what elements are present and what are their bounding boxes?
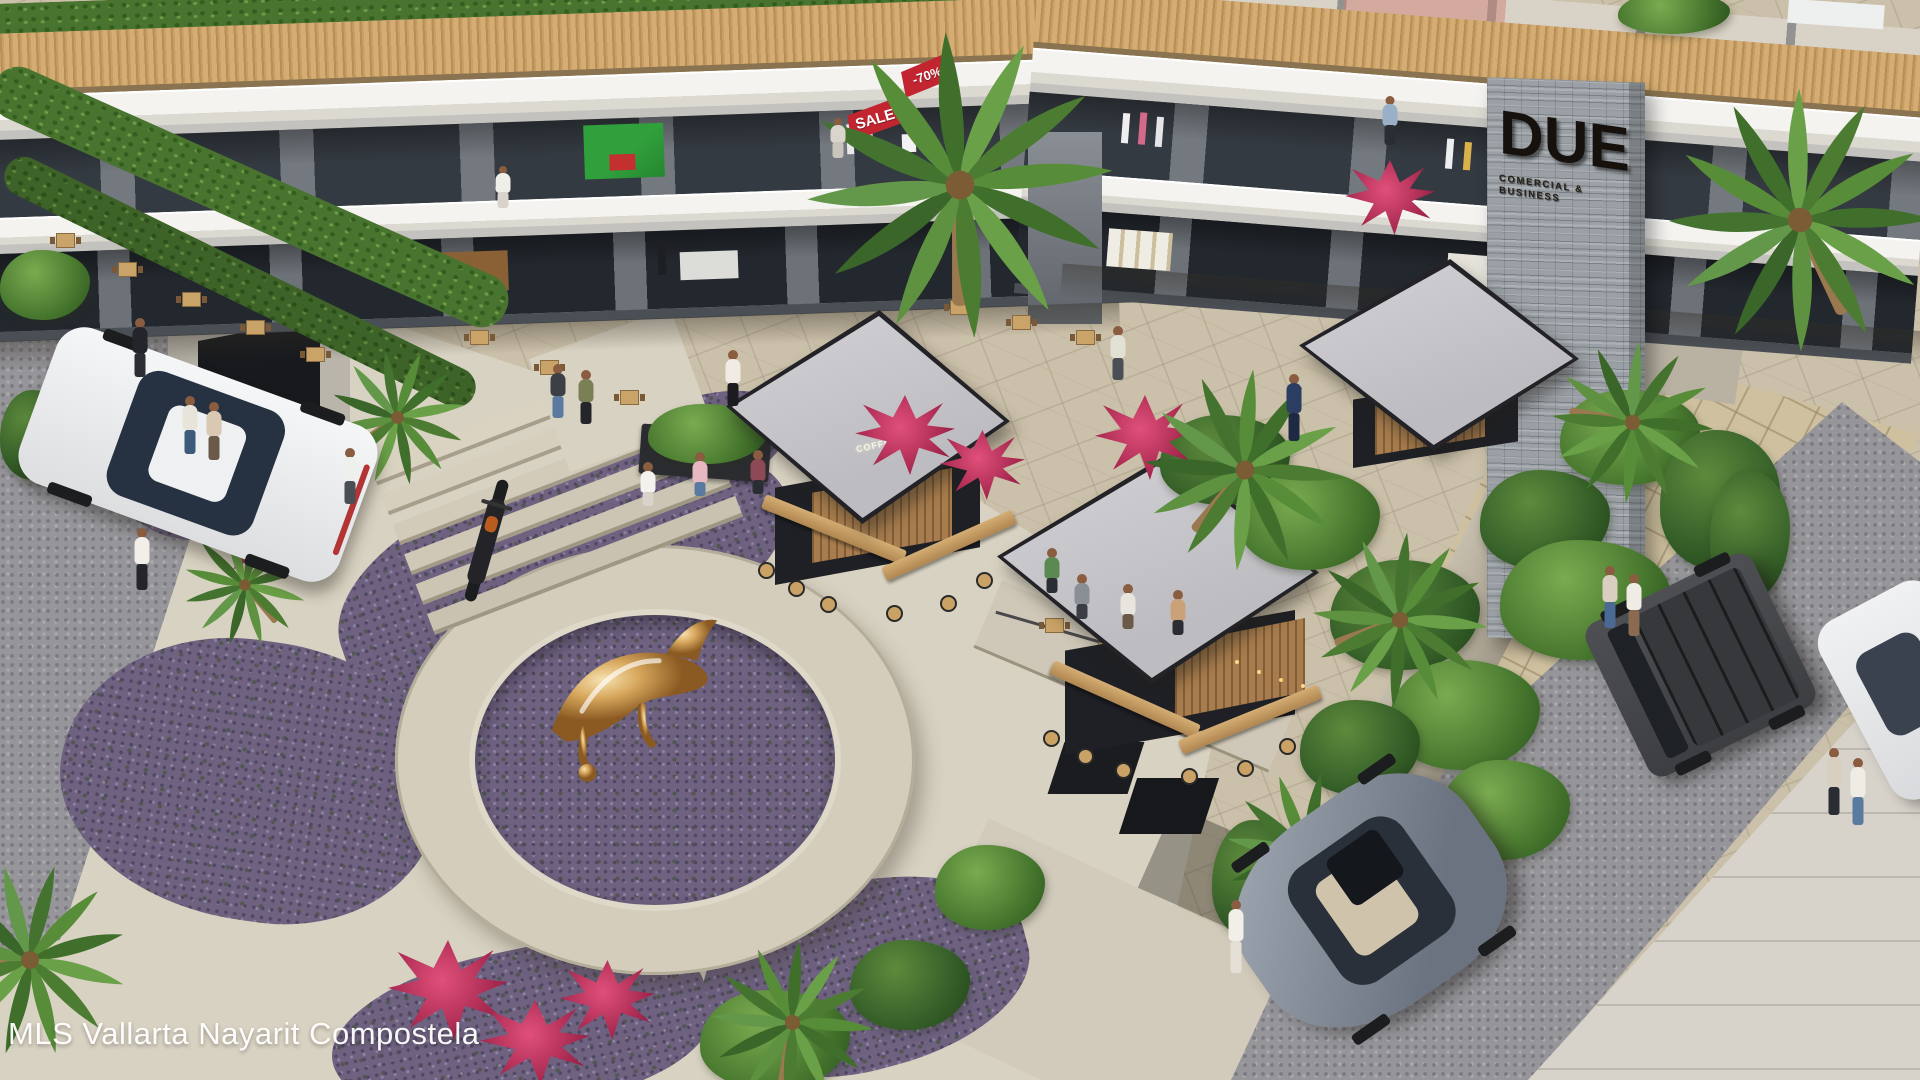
bar-stool [1181, 768, 1198, 785]
dining-table [246, 320, 265, 335]
dining-table [56, 233, 75, 248]
dining-table [118, 262, 137, 277]
bar-stool [1115, 762, 1132, 779]
dining-table [306, 347, 325, 362]
dining-table [470, 330, 489, 345]
bar-stool [940, 595, 957, 612]
bar-stool [788, 580, 805, 597]
bar-stool [758, 562, 775, 579]
bar-stool [820, 596, 837, 613]
watermark: MLS Vallarta Nayarit Compostela [8, 1016, 480, 1052]
palm-tree [1525, 315, 1739, 529]
dining-table [182, 292, 201, 307]
bar-stool [886, 605, 903, 622]
shop-display-green [583, 123, 665, 180]
palm-tree [785, 10, 1135, 360]
shop-plinth [680, 250, 739, 280]
shop-display-red [609, 154, 636, 171]
mannequin [657, 239, 666, 275]
aerial-plaza-render: DUE COMERCIAL & BUSINESS SALE -70% COFFE… [0, 0, 1920, 1080]
bar-stool [1043, 730, 1060, 747]
dining-table [620, 390, 639, 405]
bar-stool [1077, 748, 1094, 765]
